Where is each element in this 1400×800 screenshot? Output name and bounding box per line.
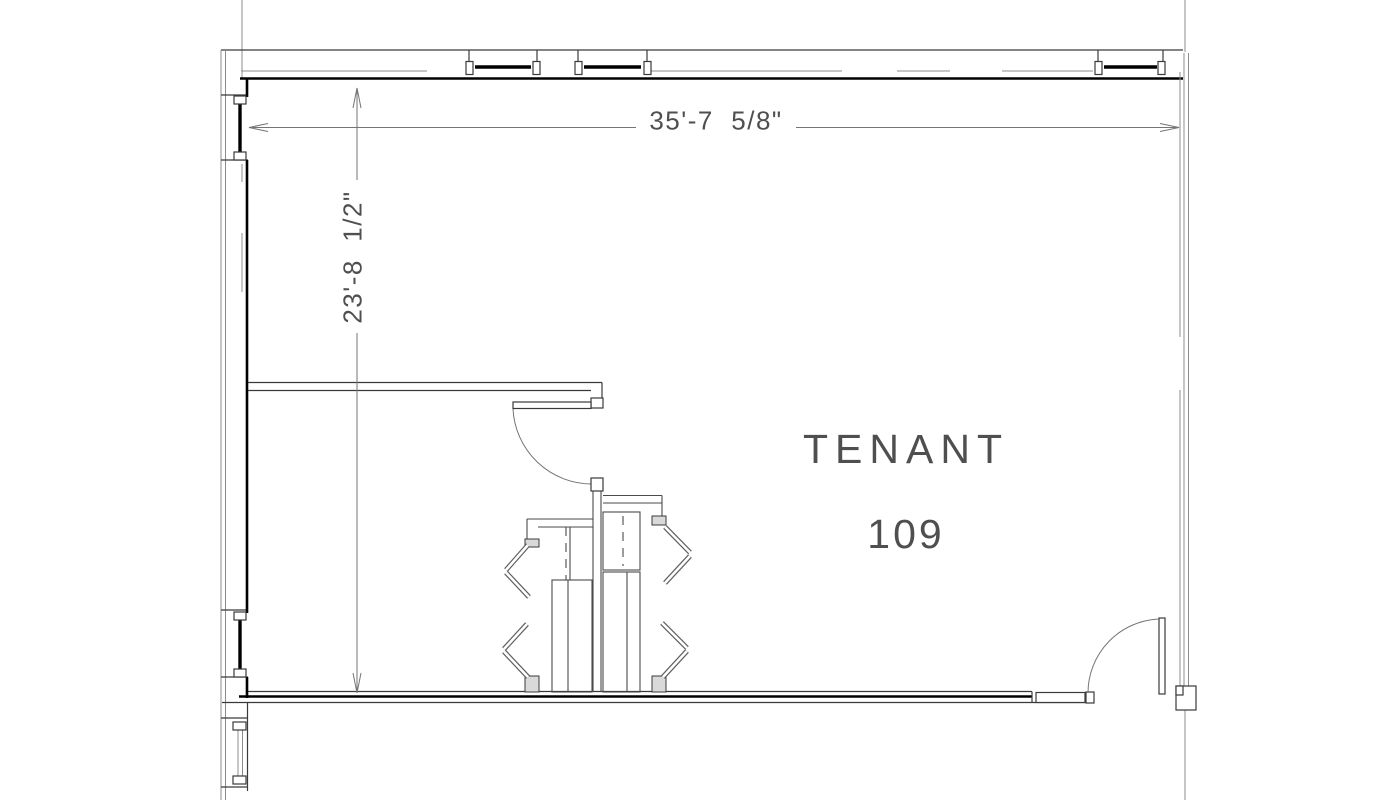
core-fixtures	[504, 491, 690, 692]
storefront-window-top-3	[1095, 50, 1165, 75]
interior-door-leaf	[513, 402, 591, 409]
bottom-wall	[222, 692, 1094, 704]
top-wall	[221, 50, 1183, 79]
left-lower-folding-door	[504, 624, 528, 677]
interior-door-strike-jamb	[591, 478, 603, 491]
window-left-1	[234, 96, 246, 160]
entry-sidelite	[1036, 693, 1085, 703]
right-upper-folding-door	[665, 527, 690, 583]
entry-door	[1088, 616, 1167, 695]
window-left-2	[234, 612, 246, 677]
left-upper-folding-door	[506, 545, 529, 597]
room-label: TENANT 109	[803, 392, 1009, 598]
right-wall	[1180, 53, 1189, 687]
interior-door-hinge-jamb	[591, 398, 603, 408]
storefront-window-top-1	[466, 50, 540, 75]
room-label-number: 109	[803, 506, 1009, 562]
floor-plan-sheet: 35'-7 5/8" 23'-8 1/2" TENANT 109	[0, 0, 1400, 800]
right-unit-post-lower	[652, 676, 666, 692]
left-wall	[221, 50, 248, 800]
right-unit-post	[652, 516, 666, 525]
interior-door-swing-arc	[513, 409, 592, 484]
entry-door-jamb	[1086, 692, 1094, 703]
right-lower-folding-door	[662, 623, 687, 677]
corner-column	[1176, 686, 1196, 710]
entry-door-swing-arc	[1088, 619, 1160, 693]
interior-partition-wall	[248, 383, 603, 492]
room-label-name: TENANT	[803, 428, 1009, 470]
height-dimension-label: 23'-8 1/2"	[338, 190, 369, 323]
right-unit-upper-cabinet	[603, 512, 640, 570]
left-unit-cabinet	[552, 580, 592, 692]
left-unit-post-lower	[525, 676, 539, 692]
right-unit-cabinet	[603, 572, 640, 692]
width-dimension-label: 35'-7 5/8"	[649, 106, 782, 137]
entry-door-leaf	[1159, 618, 1165, 694]
window-left-lower-adjacent	[233, 722, 246, 784]
storefront-window-top-2	[575, 50, 651, 75]
